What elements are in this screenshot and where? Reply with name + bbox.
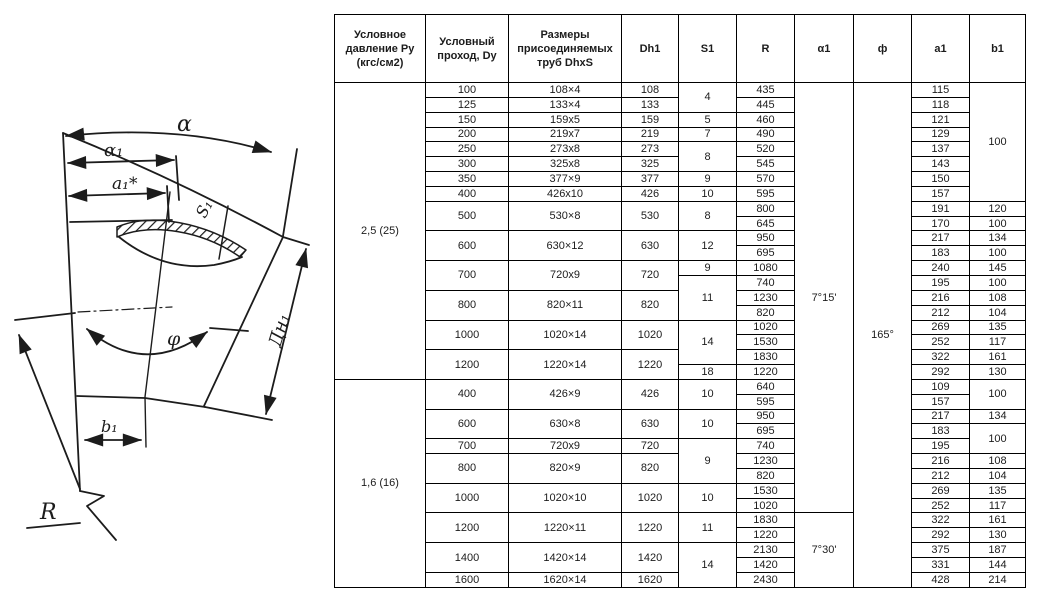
table-cell: 530 — [622, 201, 679, 231]
table-cell: 800 — [426, 454, 509, 484]
table-cell: 135 — [970, 320, 1026, 335]
table-cell: 18 — [679, 365, 737, 380]
table-cell: 108 — [622, 83, 679, 98]
table-cell: 14 — [679, 320, 737, 365]
table-cell: 7°15' — [795, 83, 854, 513]
table-row: 500530×85308800191120 — [335, 201, 1026, 216]
table-cell: 165° — [854, 83, 912, 588]
table-cell: 1220×14 — [509, 350, 622, 380]
table-cell: 545 — [737, 157, 795, 172]
table-cell: 1200 — [426, 350, 509, 380]
table-cell: 435 — [737, 83, 795, 98]
table-cell: 143 — [912, 157, 970, 172]
table-cell: 325x8 — [509, 157, 622, 172]
table-cell: 740 — [737, 275, 795, 290]
table-cell: 1230 — [737, 290, 795, 305]
table-cell: 1620 — [622, 572, 679, 587]
table-row: 700720x97209740195 — [335, 439, 1026, 454]
table-cell: 4 — [679, 83, 737, 113]
table-cell: 530×8 — [509, 201, 622, 231]
table-cell: 252 — [912, 335, 970, 350]
alpha1-label: α₁ — [104, 140, 123, 161]
table-cell: 400 — [426, 379, 509, 409]
table-cell: 1400 — [426, 543, 509, 573]
table-cell: 322 — [912, 350, 970, 365]
table-cell: 191 — [912, 201, 970, 216]
table-cell: 214 — [970, 572, 1026, 587]
table-cell: 1200 — [426, 513, 509, 543]
table-cell: 600 — [426, 409, 509, 439]
table-cell: 950 — [737, 231, 795, 246]
table-cell: 820 — [622, 454, 679, 484]
header-row: Условное давление Ру (кгс/см2)Условный п… — [335, 15, 1026, 83]
table-cell: 460 — [737, 112, 795, 127]
table-cell: 10 — [679, 409, 737, 439]
table-cell: 1620×14 — [509, 572, 622, 587]
table-cell: 1220 — [737, 528, 795, 543]
table-cell: 183 — [912, 246, 970, 261]
table-cell: 11 — [679, 275, 737, 320]
column-header: a1 — [912, 15, 970, 83]
table-cell: 5 — [679, 112, 737, 127]
phi-label: φ — [167, 328, 181, 350]
pipe-wall-hatch — [117, 220, 246, 257]
table-cell: 217 — [912, 409, 970, 424]
table-cell: 1220 — [737, 365, 795, 380]
table-row: 200219x72197490129 — [335, 127, 1026, 142]
table-cell: 252 — [912, 498, 970, 513]
table-cell: 1830 — [737, 350, 795, 365]
catalog-page: { "diagram": { "labels": { "alpha": "α",… — [0, 0, 1038, 608]
table-cell: 117 — [970, 498, 1026, 513]
dn1-label: Дн₁ — [264, 311, 294, 350]
table-cell: 595 — [737, 186, 795, 201]
table-cell: 570 — [737, 172, 795, 187]
table-cell: 426×9 — [509, 379, 622, 409]
table-cell: 212 — [912, 305, 970, 320]
table-cell: 11 — [679, 513, 737, 543]
table-cell: 595 — [737, 394, 795, 409]
table-cell: 157 — [912, 186, 970, 201]
table-row: 150159x51595460121 — [335, 112, 1026, 127]
table-cell: 161 — [970, 513, 1026, 528]
table-cell: 183 — [912, 424, 970, 439]
table-cell: 1020×14 — [509, 320, 622, 350]
table-cell: 120 — [970, 201, 1026, 216]
table-cell: 125 — [426, 97, 509, 112]
table-cell: 161 — [970, 350, 1026, 365]
column-header: ф — [854, 15, 912, 83]
pipe-spec-table: Условное давление Ру (кгс/см2)Условный п… — [334, 14, 1026, 588]
table-cell: 800 — [737, 201, 795, 216]
table-cell: 10 — [679, 379, 737, 409]
pressure-section-cell: 1,6 (16) — [335, 379, 426, 587]
table-cell: 520 — [737, 142, 795, 157]
table-cell: 195 — [912, 275, 970, 290]
table-cell: 115 — [912, 83, 970, 98]
table-row: 2,5 (25)100108×410844357°15'165°115100 — [335, 83, 1026, 98]
column-header: R — [737, 15, 795, 83]
table-cell: 100 — [970, 83, 1026, 202]
table-cell: 108 — [970, 454, 1026, 469]
table-cell: 720x9 — [509, 439, 622, 454]
table-cell: 9 — [679, 172, 737, 187]
table-cell: 377 — [622, 172, 679, 187]
table-cell: 695 — [737, 424, 795, 439]
table-cell: 108×4 — [509, 83, 622, 98]
table-cell: 1230 — [737, 454, 795, 469]
table-cell: 375 — [912, 543, 970, 558]
table-cell: 159x5 — [509, 112, 622, 127]
spec-table-container: Условное давление Ру (кгс/см2)Условный п… — [334, 14, 1026, 588]
column-header: Dh1 — [622, 15, 679, 83]
table-cell: 219 — [622, 127, 679, 142]
table-cell: 950 — [737, 409, 795, 424]
table-cell: 135 — [970, 483, 1026, 498]
table-cell: 157 — [912, 394, 970, 409]
table-cell: 426x10 — [509, 186, 622, 201]
column-header: Условное давление Ру (кгс/см2) — [335, 15, 426, 83]
table-cell: 130 — [970, 365, 1026, 380]
table-cell: 104 — [970, 305, 1026, 320]
table-cell: 150 — [912, 172, 970, 187]
table-cell: 109 — [912, 379, 970, 394]
table-cell: 445 — [737, 97, 795, 112]
table-cell: 7°30' — [795, 513, 854, 587]
column-header: α1 — [795, 15, 854, 83]
table-row: 12001220×1112201118307°30'322161 — [335, 513, 1026, 528]
table-cell: 195 — [912, 439, 970, 454]
table-cell: 100 — [970, 424, 1026, 454]
table-cell: 133×4 — [509, 97, 622, 112]
table-cell: 104 — [970, 468, 1026, 483]
table-cell: 150 — [426, 112, 509, 127]
table-cell: 1420 — [622, 543, 679, 573]
table-cell: 500 — [426, 201, 509, 231]
table-cell: 134 — [970, 409, 1026, 424]
column-header: b1 — [970, 15, 1026, 83]
table-cell: 130 — [970, 528, 1026, 543]
table-cell: 219x7 — [509, 127, 622, 142]
table-cell: 273 — [622, 142, 679, 157]
table-cell: 377×9 — [509, 172, 622, 187]
table-cell: 269 — [912, 483, 970, 498]
table-cell: 100 — [970, 379, 1026, 409]
table-cell: 14 — [679, 543, 737, 588]
table-cell: 240 — [912, 261, 970, 276]
table-cell: 630 — [622, 231, 679, 261]
table-cell: 645 — [737, 216, 795, 231]
table-cell: 820 — [737, 305, 795, 320]
table-cell: 10 — [679, 483, 737, 513]
table-cell: 12 — [679, 231, 737, 261]
alpha-label: α — [177, 112, 192, 137]
table-cell: 1220 — [622, 513, 679, 543]
table-row: 10001020×101020101530269135 — [335, 483, 1026, 498]
pressure-section-cell: 2,5 (25) — [335, 83, 426, 380]
table-cell: 129 — [912, 127, 970, 142]
column-header: S1 — [679, 15, 737, 83]
table-row: 700720x972091080240145 — [335, 261, 1026, 276]
r-label: R — [39, 500, 57, 525]
table-cell: 292 — [912, 365, 970, 380]
table-cell: 695 — [737, 246, 795, 261]
table-cell: 144 — [970, 558, 1026, 573]
table-cell: 216 — [912, 454, 970, 469]
table-cell: 8 — [679, 201, 737, 231]
table-cell: 700 — [426, 439, 509, 454]
table-cell: 1530 — [737, 335, 795, 350]
table-cell: 630×12 — [509, 231, 622, 261]
phi-dimension — [15, 313, 248, 354]
table-cell: 159 — [622, 112, 679, 127]
table-cell: 100 — [426, 83, 509, 98]
table-cell: 1220 — [622, 350, 679, 380]
table-row: 350377×93779570150 — [335, 172, 1026, 187]
table-cell: 820×11 — [509, 290, 622, 320]
a1-star-label: a₁* — [112, 174, 138, 194]
table-cell: 250 — [426, 142, 509, 157]
table-cell: 1600 — [426, 572, 509, 587]
table-row: 400426x1042610595157 — [335, 186, 1026, 201]
table-cell: 1220×11 — [509, 513, 622, 543]
table-cell: 1000 — [426, 320, 509, 350]
table-cell: 133 — [622, 97, 679, 112]
table-cell: 100 — [970, 275, 1026, 290]
table-cell: 187 — [970, 543, 1026, 558]
table-cell: 217 — [912, 231, 970, 246]
table-cell: 200 — [426, 127, 509, 142]
table-cell: 100 — [970, 246, 1026, 261]
table-cell: 7 — [679, 127, 737, 142]
table-row: 1,6 (16)400426×942610640109100 — [335, 379, 1026, 394]
table-cell: 400 — [426, 186, 509, 201]
technical-drawing: α α₁ a₁* S₁ Дн₁ φ b₁ R — [0, 0, 335, 608]
table-cell: 216 — [912, 290, 970, 305]
table-cell: 490 — [737, 127, 795, 142]
table-cell: 2130 — [737, 543, 795, 558]
table-cell: 273x8 — [509, 142, 622, 157]
table-cell: 630 — [622, 409, 679, 439]
table-cell: 1830 — [737, 513, 795, 528]
table-cell: 170 — [912, 216, 970, 231]
table-cell: 269 — [912, 320, 970, 335]
table-cell: 212 — [912, 468, 970, 483]
table-cell: 1020 — [737, 320, 795, 335]
table-cell: 720x9 — [509, 261, 622, 291]
table-cell: 740 — [737, 439, 795, 454]
table-cell: 800 — [426, 290, 509, 320]
table-cell: 1420×14 — [509, 543, 622, 573]
s1-leader-line — [219, 206, 228, 259]
column-header: Условный проход, Dy — [426, 15, 509, 83]
table-cell: 292 — [912, 528, 970, 543]
column-header: Размеры присоединяемых труб DhxS — [509, 15, 622, 83]
table-cell: 1020 — [737, 498, 795, 513]
table-row: 250273x82738520137 — [335, 142, 1026, 157]
table-cell: 426 — [622, 186, 679, 201]
table-cell: 820 — [737, 468, 795, 483]
table-cell: 118 — [912, 97, 970, 112]
table-cell: 121 — [912, 112, 970, 127]
table-cell: 820×9 — [509, 454, 622, 484]
table-cell: 100 — [970, 216, 1026, 231]
table-cell: 1080 — [737, 261, 795, 276]
table-cell: 1020×10 — [509, 483, 622, 513]
table-cell: 2430 — [737, 572, 795, 587]
table-cell: 1020 — [622, 320, 679, 350]
table-row: 14001420×141420142130375187 — [335, 543, 1026, 558]
r-radius-leader — [19, 335, 116, 540]
table-cell: 820 — [622, 290, 679, 320]
table-cell: 720 — [622, 261, 679, 291]
table-cell: 700 — [426, 261, 509, 291]
table-cell: 1020 — [622, 483, 679, 513]
table-cell: 630×8 — [509, 409, 622, 439]
table-row: 600630×863010950217134 — [335, 409, 1026, 424]
table-cell: 426 — [622, 379, 679, 409]
table-cell: 134 — [970, 231, 1026, 246]
table-cell: 428 — [912, 572, 970, 587]
table-cell: 720 — [622, 439, 679, 454]
table-cell: 1000 — [426, 483, 509, 513]
table-cell: 10 — [679, 186, 737, 201]
table-cell: 350 — [426, 172, 509, 187]
table-cell: 1420 — [737, 558, 795, 573]
pipe-segment-outline — [63, 133, 283, 491]
table-cell: 600 — [426, 231, 509, 261]
table-cell: 322 — [912, 513, 970, 528]
table-row: 600630×1263012950217134 — [335, 231, 1026, 246]
table-cell: 331 — [912, 558, 970, 573]
table-cell: 1530 — [737, 483, 795, 498]
table-cell: 8 — [679, 142, 737, 172]
table-cell: 9 — [679, 439, 737, 484]
table-cell: 108 — [970, 290, 1026, 305]
b1-label: b₁ — [101, 417, 118, 436]
table-cell: 300 — [426, 157, 509, 172]
table-cell: 145 — [970, 261, 1026, 276]
table-cell: 325 — [622, 157, 679, 172]
table-cell: 117 — [970, 335, 1026, 350]
centre-mark — [78, 307, 172, 312]
table-cell: 137 — [912, 142, 970, 157]
table-cell: 640 — [737, 379, 795, 394]
table-cell: 9 — [679, 261, 737, 276]
table-row: 10001020×141020141020269135 — [335, 320, 1026, 335]
